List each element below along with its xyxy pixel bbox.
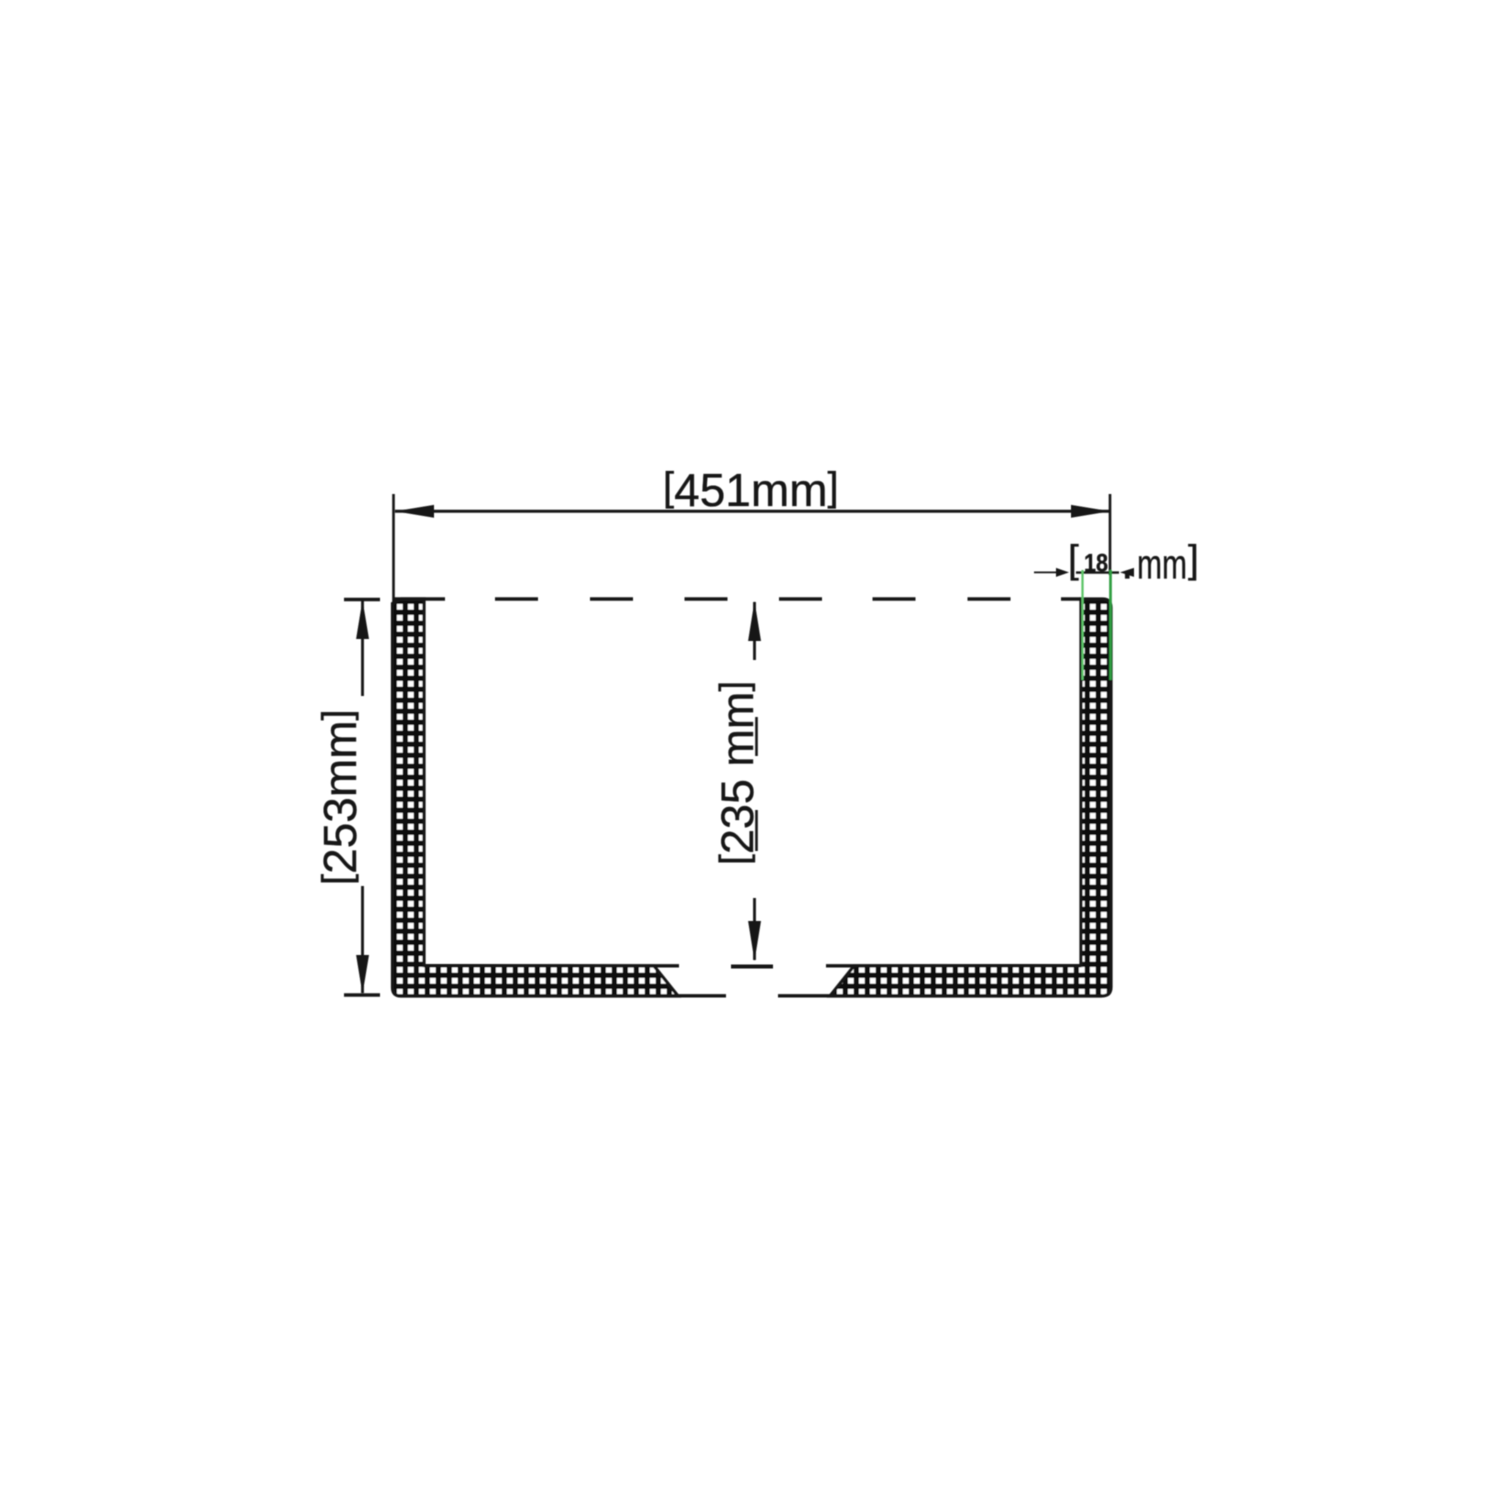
svg-text:mm: mm bbox=[1137, 541, 1187, 588]
svg-text:18: 18 bbox=[1084, 550, 1108, 578]
svg-text:[253mm]: [253mm] bbox=[314, 709, 366, 885]
svg-text:[: [ bbox=[1068, 539, 1079, 582]
svg-text:.: . bbox=[1121, 538, 1134, 589]
svg-text:[451mm]: [451mm] bbox=[663, 464, 839, 516]
svg-text:]: ] bbox=[1188, 539, 1199, 582]
